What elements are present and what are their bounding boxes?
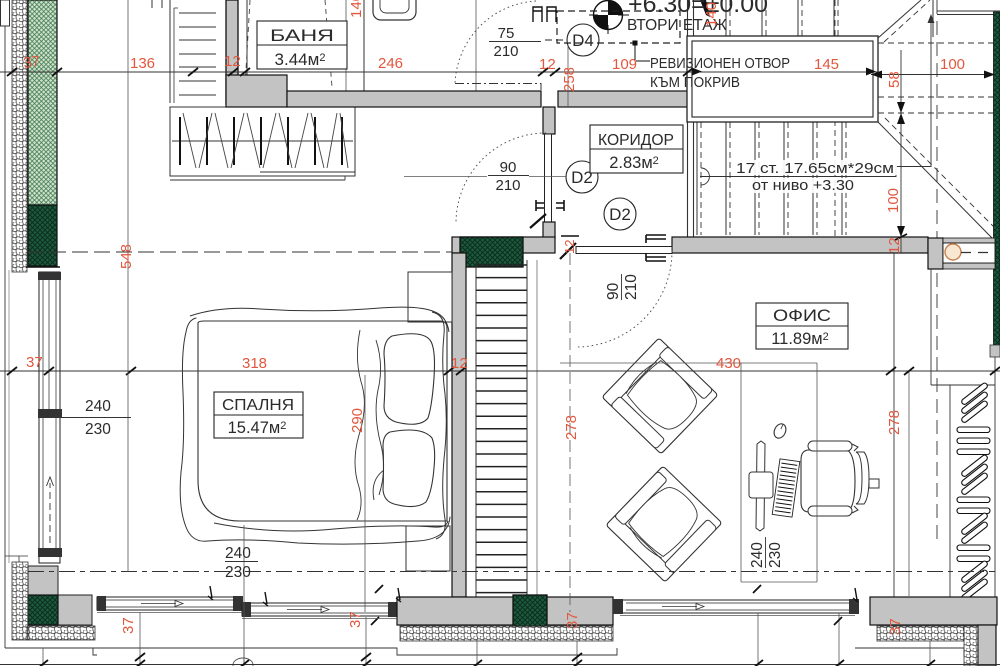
svg-text:37: 37 [120, 617, 137, 634]
svg-text:37: 37 [887, 618, 904, 635]
svg-text:230: 230 [225, 564, 251, 581]
svg-text:240: 240 [85, 398, 111, 415]
svg-text:210: 210 [493, 43, 518, 60]
svg-text:240: 240 [749, 542, 766, 568]
svg-text:D4: D4 [572, 31, 594, 50]
svg-text:278: 278 [563, 415, 580, 440]
svg-text:58: 58 [886, 71, 903, 88]
svg-text:318: 318 [242, 355, 267, 372]
svg-text:145: 145 [814, 56, 839, 73]
svg-text:12: 12 [886, 237, 903, 254]
svg-text:37: 37 [26, 354, 43, 371]
svg-text:140: 140 [703, 2, 720, 27]
svg-text:ОФИС: ОФИС [773, 307, 831, 325]
svg-text:11.89м2: 11.89м2 [771, 330, 829, 348]
svg-text:+6.30=±0.00: +6.30=±0.00 [628, 0, 768, 18]
svg-text:РЕВИЗИОНЕН ОТВОР: РЕВИЗИОНЕН ОТВОР [650, 55, 790, 72]
svg-text:12: 12 [562, 240, 577, 254]
svg-text:278: 278 [886, 410, 903, 435]
svg-text:230: 230 [767, 542, 784, 568]
svg-text:90: 90 [500, 159, 517, 176]
svg-text:136: 136 [130, 55, 155, 72]
svg-text:210: 210 [495, 177, 520, 194]
svg-text:3.44м2: 3.44м2 [275, 50, 326, 69]
svg-text:430: 430 [716, 355, 741, 372]
svg-text:37: 37 [564, 612, 581, 629]
svg-text:D2: D2 [609, 205, 631, 224]
svg-text:37: 37 [22, 53, 41, 72]
svg-text:258: 258 [561, 67, 578, 92]
svg-text:246: 246 [378, 55, 403, 72]
svg-text:КОРИДОР: КОРИДОР [598, 132, 674, 149]
svg-text:12: 12 [224, 53, 241, 70]
svg-text:12: 12 [539, 56, 556, 73]
svg-text:100: 100 [940, 56, 965, 73]
svg-text:БАНЯ: БАНЯ [270, 26, 334, 45]
svg-text:230: 230 [85, 421, 111, 438]
svg-text:90: 90 [605, 282, 622, 300]
svg-text:290: 290 [349, 408, 366, 433]
svg-text:210: 210 [623, 274, 640, 300]
svg-text:СПАЛНЯ: СПАЛНЯ [222, 397, 294, 414]
svg-text:109: 109 [612, 56, 637, 73]
svg-text:2.83м2: 2.83м2 [609, 154, 659, 172]
svg-text:от ниво +3.30: от ниво +3.30 [752, 178, 854, 194]
svg-text:17 ст. 17.65см*29см: 17 ст. 17.65см*29см [736, 161, 894, 177]
svg-text:37: 37 [347, 611, 364, 628]
svg-text:548: 548 [118, 244, 135, 269]
svg-text:КЪМ ПОКРИВ: КЪМ ПОКРИВ [650, 74, 740, 91]
svg-text:140: 140 [348, 0, 365, 18]
svg-text:75: 75 [498, 25, 515, 42]
svg-text:12: 12 [451, 355, 468, 372]
svg-text:15.47м2: 15.47м2 [228, 419, 287, 437]
svg-text:100: 100 [885, 188, 902, 213]
svg-text:240: 240 [225, 545, 251, 562]
